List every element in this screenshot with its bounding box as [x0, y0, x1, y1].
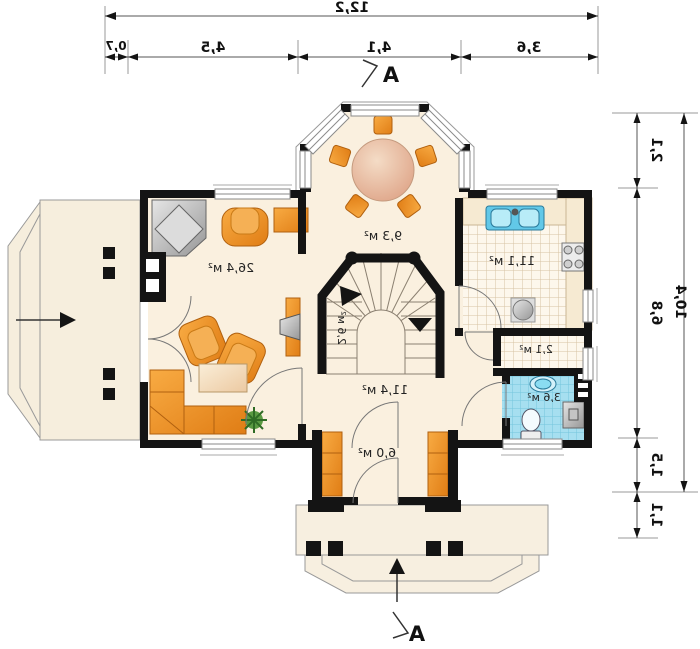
label-stairs: 2,6 м² — [335, 311, 348, 345]
section-marker-bottom: A — [408, 622, 425, 646]
wardrobe — [322, 432, 342, 496]
dimension-right: 2,1 6,8 1,5 1,1 10,4 — [612, 113, 698, 538]
label-kitchen: 11,1 м² — [489, 253, 535, 268]
label-hall: 11,4 м² — [362, 382, 408, 397]
dim-right-total: 10,4 — [672, 284, 688, 319]
dim-top-seg-2: 4,5 — [201, 40, 226, 56]
dim-right-seg-2: 6,8 — [648, 301, 664, 326]
dim-right-seg-4: 1,1 — [648, 503, 664, 528]
shower — [563, 402, 584, 428]
dimension-top: 12,2 0,7 4,5 4,1 3,6 — [105, 0, 598, 74]
label-pantry-wc: 2,1 м² — [519, 343, 553, 356]
boiler — [511, 298, 535, 322]
kitchen-sink — [486, 206, 544, 230]
chimney — [140, 252, 166, 302]
dim-top-total: 12,2 — [335, 0, 370, 16]
section-marker-top: A — [382, 63, 399, 87]
label-dining-bay: 9,3 м² — [364, 228, 402, 243]
wardrobe — [428, 432, 448, 496]
label-bathroom: 3,6 м² — [527, 391, 561, 404]
dining-table — [352, 139, 414, 201]
floor-plan-page: 12,2 0,7 4,5 4,1 3,6 2,1 6,8 1,5 1,1 10,… — [0, 0, 700, 649]
toilet — [521, 409, 541, 440]
coffee-table — [199, 364, 247, 392]
stair-well — [357, 310, 405, 374]
washbasin — [530, 376, 556, 392]
dim-right-seg-3: 1,5 — [648, 453, 664, 478]
stair-post — [408, 252, 421, 265]
dim-top-seg-3: 4,1 — [367, 40, 392, 56]
armchair — [222, 208, 268, 246]
dim-top-seg-4: 3,6 — [517, 40, 542, 56]
floor-plan-svg: 12,2 0,7 4,5 4,1 3,6 2,1 6,8 1,5 1,1 10,… — [0, 0, 700, 649]
dim-right-seg-1: 2,1 — [648, 138, 664, 163]
label-entrance-hall: 6,0 м² — [358, 445, 396, 460]
label-living-room: 26,4 м² — [208, 260, 254, 275]
stove — [562, 243, 584, 271]
dim-top-seg-1: 0,7 — [105, 39, 126, 53]
stair-post — [346, 252, 359, 265]
